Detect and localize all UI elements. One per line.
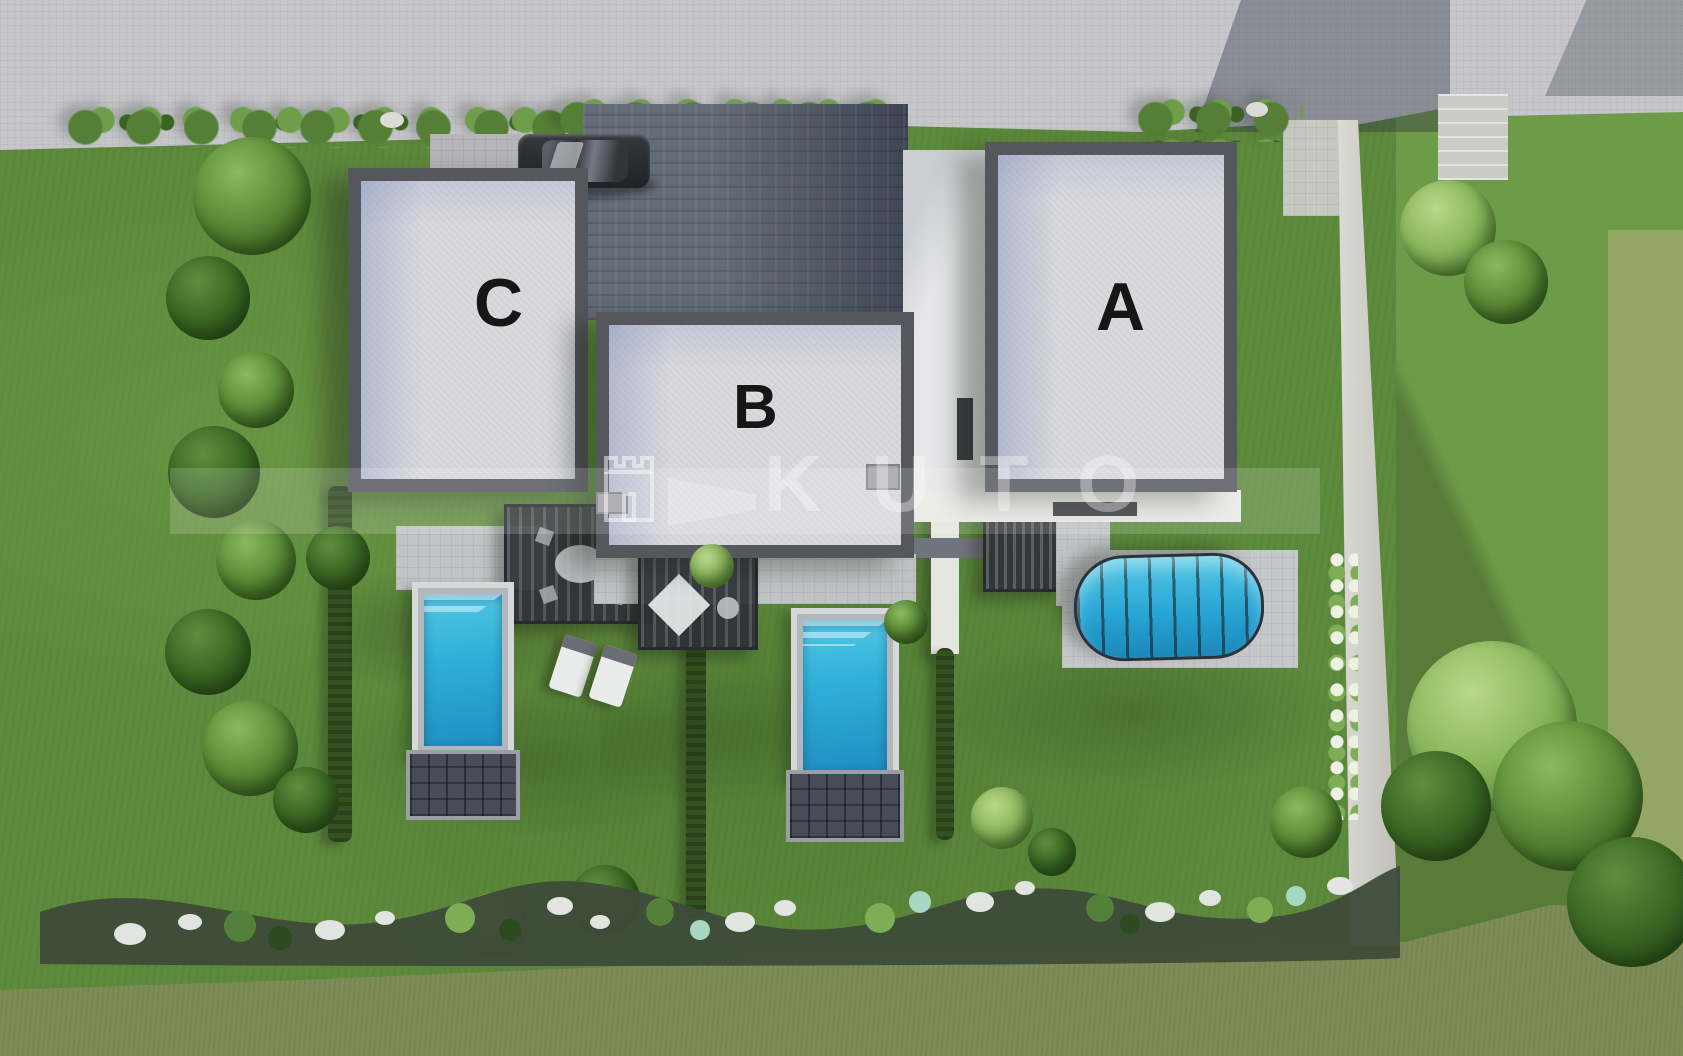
pool-b-water bbox=[803, 620, 887, 770]
sun-lounger bbox=[588, 644, 638, 708]
tree bbox=[166, 256, 250, 340]
wall-flower-shrubs bbox=[1328, 552, 1358, 820]
rock-garden-border bbox=[40, 826, 1400, 976]
villa-a-label: A bbox=[1096, 273, 1145, 341]
pool-c-water bbox=[424, 594, 502, 746]
tree bbox=[218, 352, 294, 428]
villa-c-label: C bbox=[474, 269, 523, 337]
garden-bush bbox=[884, 600, 928, 644]
tree bbox=[193, 137, 311, 255]
rock bbox=[380, 112, 404, 128]
aerial-site-render: C B A bbox=[0, 0, 1683, 1056]
pool-c-steps bbox=[424, 594, 502, 618]
garden-bush bbox=[690, 544, 734, 588]
villa-c-roof: C bbox=[348, 168, 588, 492]
watermark-text: KUTO bbox=[764, 444, 1364, 524]
roadside-hedge-row bbox=[1138, 94, 1303, 142]
hedge-between-b-a bbox=[936, 648, 954, 840]
rock bbox=[1246, 102, 1268, 117]
pool-b-steps bbox=[803, 620, 887, 646]
tree bbox=[165, 609, 251, 695]
pool-a-enclosure bbox=[1073, 552, 1266, 663]
villa-b-label: B bbox=[733, 377, 778, 439]
pool-c-end-platform bbox=[406, 750, 520, 820]
side-table bbox=[717, 597, 739, 619]
tree bbox=[306, 526, 370, 590]
tree bbox=[1464, 240, 1548, 324]
dining-chair bbox=[539, 585, 558, 604]
tree bbox=[273, 767, 339, 833]
neighbor-steps-pad bbox=[1438, 94, 1508, 180]
watermark-logo-castle-icon bbox=[598, 450, 660, 528]
